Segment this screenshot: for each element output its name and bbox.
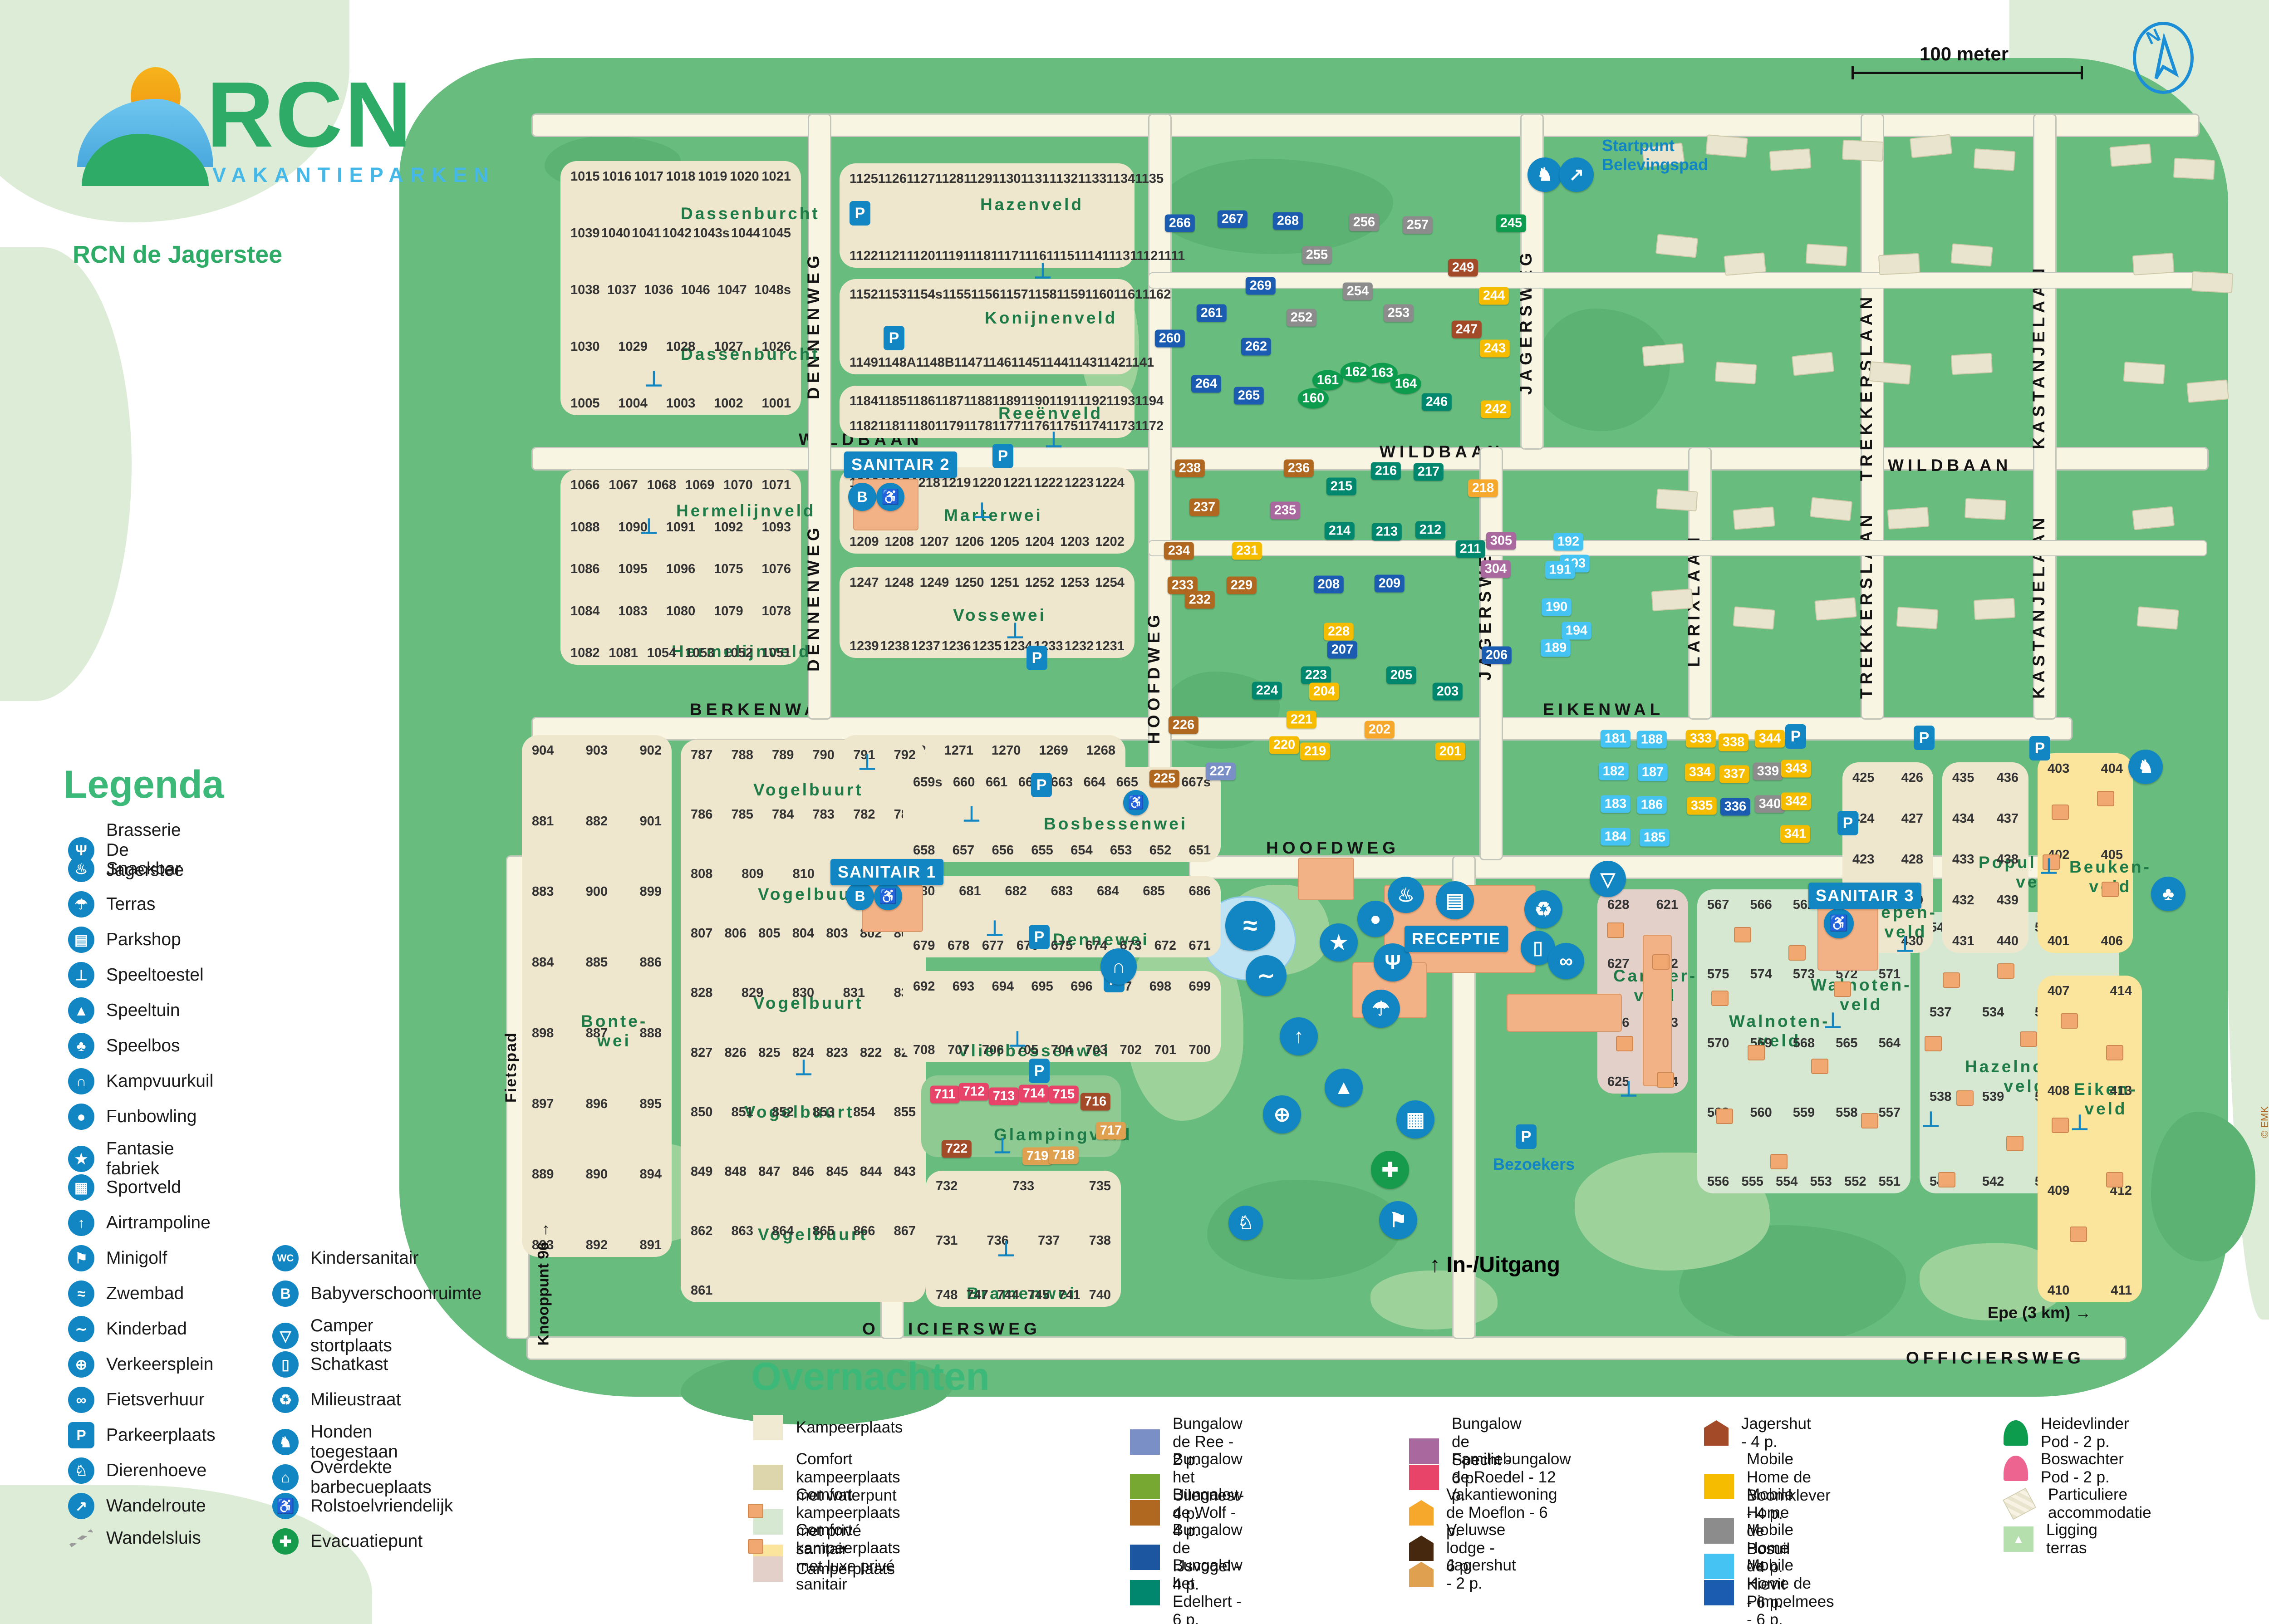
plot-number: 1132 (1049, 172, 1078, 186)
plot-number: 829 (742, 986, 763, 1001)
overnachten-swatch (1704, 1420, 1729, 1446)
bungalow-tag: 247 (1452, 321, 1482, 339)
plot-number: 537 (1930, 1005, 1951, 1020)
plot-number: 437 (1997, 811, 2019, 826)
particuliere-accommodatie (1642, 343, 1684, 367)
bungalow-tag: 711 (930, 1086, 960, 1104)
plot-number: 1220 (972, 476, 1002, 491)
plot-number: 440 (1997, 934, 2019, 949)
plot-numbers: 680681682683684685686 (913, 884, 1211, 899)
speeltoestel-icon: ⊥ (637, 515, 661, 538)
rolstoel-icon: ♿ (1123, 790, 1149, 815)
plot-number: 748 (936, 1288, 958, 1303)
evacuatiepunt-icon: ✚ (272, 1528, 299, 1555)
plot-number: 783 (813, 807, 835, 822)
parking-icon: P (1031, 773, 1052, 797)
parking-icon: P (1026, 646, 1047, 670)
sportveld-icon: ▦ (1396, 1100, 1434, 1138)
plot-number: 733 (1012, 1179, 1034, 1194)
plot-number: 1111 (1158, 249, 1185, 264)
plot-number: 1252 (1025, 575, 1055, 590)
plot-number: 1193 (1106, 394, 1135, 409)
plot-number: 1120 (907, 249, 935, 264)
plot-number: 741 (1058, 1288, 1080, 1303)
legend-item: ♘Dierenhoeve (68, 1457, 206, 1484)
plot-number: 1096 (666, 562, 696, 577)
plot-number: 740 (1089, 1288, 1111, 1303)
bungalow-tag: 333 (1686, 730, 1716, 748)
legend-item: ▦Sportveld (68, 1174, 181, 1201)
plot-number: 1048s (754, 283, 791, 298)
rolstoel-icon: ♿ (1824, 908, 1854, 938)
plot-number: 658 (913, 843, 935, 858)
honden-icon: ♞ (2128, 750, 2163, 784)
bungalow-tag: 232 (1185, 591, 1215, 609)
scale-bar (1852, 72, 2083, 74)
plot-number: 1037 (607, 283, 637, 298)
particuliere-accommodatie (1810, 497, 1852, 521)
plot-number: 787 (691, 748, 712, 763)
plot-number: 887 (586, 1026, 608, 1041)
legend-item-label: Speeltuin (106, 1001, 180, 1021)
bungalow-tag: 335 (1687, 797, 1717, 815)
plot-number: 1038 (570, 283, 600, 298)
bungalow-tag: 228 (1324, 623, 1354, 641)
plot-number: 1152 (850, 287, 878, 302)
bungalow-tag: 717 (1096, 1122, 1126, 1140)
bungalow-tag: 185 (1640, 829, 1670, 847)
road-service (1148, 540, 2207, 556)
plot-number: 865 (813, 1224, 835, 1239)
plot-numbers: 106610671068106910701071 (570, 478, 791, 493)
speelbos-icon: ♣ (68, 1033, 94, 1059)
particuliere-accommodatie (1733, 606, 1775, 630)
plot-number: 1174 (1078, 419, 1106, 434)
parking-icon: P (1785, 724, 1806, 749)
parkshop-icon: ▤ (1436, 881, 1474, 919)
speeltoestel-icon: ⊥ (2068, 1111, 2092, 1134)
bungalow-tag: 160 (1298, 388, 1329, 409)
plot-number: 1194 (1135, 394, 1164, 409)
plot-number: 1066 (570, 478, 600, 493)
plot-number: 809 (742, 867, 763, 882)
plot-number: 1134 (1106, 172, 1135, 186)
bungalow-tag: 305 (1486, 532, 1516, 550)
legend-item: ☂Terras (68, 891, 155, 917)
plot-number: 1122 (850, 249, 878, 264)
plot-number: 628 (1607, 898, 1629, 913)
plot-number: 844 (860, 1164, 882, 1179)
bungalow-tag: 246 (1422, 393, 1452, 411)
plot-number: 1125 (850, 172, 878, 186)
speeltuin-icon: ▲ (68, 997, 94, 1024)
plot-number: 1045 (761, 226, 791, 241)
plot-numbers: 115211531154s115511561157115811591160116… (850, 287, 1125, 302)
plot-numbers: 884885886 (532, 955, 662, 970)
bungalow-tag: 226 (1169, 716, 1198, 734)
plot-numbers: 556555554553552551 (1707, 1174, 1901, 1189)
prive-sanitair-cabin (2102, 882, 2119, 897)
plot-number: 409 (2048, 1183, 2069, 1198)
bungalow-tag: 219 (1300, 743, 1330, 760)
epe-label: Epe (3 km) → (1988, 1303, 2091, 1322)
particuliere-accommodatie (2136, 606, 2179, 630)
speeltoestel-icon: ⊥ (1031, 259, 1055, 283)
plot-number: 1147 (954, 355, 983, 370)
legend-item-label: Milieustraat (310, 1390, 401, 1410)
dierenhoeve-icon: ♘ (1228, 1206, 1263, 1240)
plot-number: 1209 (850, 535, 879, 550)
overnachten-swatch (753, 1556, 783, 1582)
bungalow-tag: 260 (1155, 330, 1185, 348)
plot-numbers: 679678677676675674673672671 (913, 938, 1211, 953)
plot-number: 1005 (570, 396, 600, 411)
minigolf-icon: ⚑ (68, 1245, 94, 1271)
plot-number: 850 (691, 1105, 712, 1120)
knooppunt-label: Knooppunt 96 → (535, 1222, 552, 1346)
prive-sanitair-cabin (1616, 1036, 1633, 1051)
plot-numbers: 570569568565564 (1707, 1036, 1901, 1051)
plot-number: 1148A (878, 355, 916, 370)
legend-item: ∞Fietsverhuur (68, 1387, 205, 1413)
park-name: RCN de Jagerstee (73, 240, 282, 269)
plot-number: 675 (1051, 938, 1073, 953)
plot-number: 1141 (1125, 355, 1154, 370)
legend-item-label: Zwembad (106, 1284, 184, 1304)
terras-icon: ☂ (1362, 990, 1400, 1028)
plot-number: 704 (1051, 1043, 1073, 1058)
plot-number: 898 (532, 1026, 554, 1041)
plot-number: 1190 (1021, 394, 1050, 409)
plot-numbers: 10391040104110421043s10441045 (570, 226, 791, 241)
plot-number: 738 (1089, 1233, 1111, 1248)
plot-number: 786 (691, 807, 712, 822)
plot-number: 411 (2111, 1283, 2132, 1298)
speeltuin-icon: ▲ (1325, 1069, 1363, 1107)
plot-number: 433 (1952, 852, 1974, 867)
plot-number: 888 (640, 1026, 662, 1041)
plot-number: 672 (1154, 938, 1176, 953)
plot-numbers: 1182118111801179117811771176117511741173… (850, 419, 1125, 434)
speeltoestel-icon: ⊥ (994, 1237, 1018, 1261)
barbecue-icon: ⌂ (272, 1464, 299, 1491)
plot-number: 621 (1656, 898, 1678, 913)
bungalow-tag: 340 (1755, 795, 1785, 813)
speeltoestel-icon: ⊥ (1042, 428, 1066, 451)
evacuatiepunt-icon: ✚ (1371, 1151, 1409, 1189)
plot-number: 1041 (632, 226, 661, 241)
plot-number: 1162 (1142, 287, 1171, 302)
plot-numbers: 10301029102810271026 (570, 339, 791, 354)
plot-number: 554 (1776, 1174, 1798, 1189)
bungalow-tag: 253 (1384, 304, 1414, 322)
bungalow-tag: 224 (1252, 682, 1282, 700)
plot-numbers: 692693694695696697698699 (913, 979, 1211, 994)
plot-number: 1129 (964, 172, 992, 186)
plot-number: 439 (1997, 893, 2019, 908)
plot-numbers: 11491148A1148B11471146114511441143114211… (850, 355, 1125, 370)
overnachten-item-label: Kampeerplaats (796, 1418, 903, 1437)
bungalow-tag: 342 (1781, 793, 1811, 810)
parkshop-icon: ▤ (68, 927, 94, 953)
wandelroute-icon: ↗ (68, 1493, 94, 1519)
plot-number: 558 (1836, 1105, 1857, 1120)
plot-number: 1185 (878, 394, 907, 409)
plot-number: 785 (732, 807, 753, 822)
bungalow-tag: 336 (1720, 798, 1750, 816)
plot-numbers: 1184118511861187118811891190119111921193… (850, 394, 1125, 409)
plot-number: 1044 (731, 226, 761, 241)
plot-number: 664 (1084, 775, 1105, 790)
bungalow-tag: 227 (1206, 763, 1236, 780)
plot-number: 1112 (1130, 249, 1158, 264)
plot-number: 555 (1742, 1174, 1763, 1189)
plot-numbers: 628621 (1607, 898, 1678, 913)
road-service (1148, 272, 2207, 289)
prive-sanitair-cabin (2106, 1045, 2123, 1060)
plot-number: 434 (1952, 811, 1974, 826)
plot-number: 682 (1005, 884, 1027, 899)
legend-item-label: Fietsverhuur (106, 1390, 205, 1410)
plot-numbers: 786785784783782781 (691, 807, 916, 822)
particuliere-accommodatie (1887, 507, 1930, 530)
plot-number: 1119 (935, 249, 963, 264)
plot-number: 1040 (601, 226, 631, 241)
kinderbad-icon: ∼ (68, 1316, 94, 1342)
plot-number: 1083 (618, 604, 648, 619)
plot-numbers: 425426 (1852, 770, 1923, 785)
bungalow-tag: 218 (1468, 480, 1498, 497)
speeltoestel-icon: ⊥ (983, 917, 1007, 940)
area-label: Vogelbuurt (753, 780, 864, 800)
street-label-TREKKERSLAAN: TREKKERSLAAN (1857, 511, 1876, 699)
plot-number: 851 (732, 1105, 753, 1120)
plot-number: 805 (758, 926, 780, 941)
plot-number: 1157 (1000, 287, 1028, 302)
plot-number: 1188 (964, 394, 992, 409)
particuliere-accommodatie (1724, 252, 1766, 276)
zwembad-icon: ≈ (68, 1281, 94, 1307)
plot-number: 1143 (1068, 355, 1097, 370)
plot-numbers: 10881090109110921093 (570, 520, 791, 535)
bungalow-tag: 245 (1496, 215, 1526, 232)
plot-number: 892 (586, 1238, 608, 1253)
prive-sanitair-cabin (2006, 1136, 2023, 1151)
bungalow-tag: 268 (1273, 212, 1303, 230)
legend-item: ▯Schatkast (272, 1351, 388, 1378)
legend-item: ∼Kinderbad (68, 1316, 187, 1342)
plot-number: 542 (1982, 1174, 2004, 1189)
bungalow-tag: 339 (1753, 763, 1783, 780)
plot-number: 849 (691, 1164, 712, 1179)
plot-number: 553 (1810, 1174, 1832, 1189)
bungalow-tag: 235 (1270, 502, 1300, 520)
plot-number: 1079 (714, 604, 743, 619)
plot-number: 684 (1097, 884, 1119, 899)
plot-number: 732 (936, 1179, 958, 1194)
particuliere-accommodatie (1842, 140, 1884, 162)
plot-number: 700 (1189, 1043, 1211, 1058)
prive-sanitair-cabin (2052, 1118, 2069, 1133)
rolstoel-icon: ♿ (874, 882, 902, 910)
plot-number: 574 (1750, 967, 1772, 982)
plot-number: 790 (813, 748, 835, 763)
honden-icon: ♞ (1527, 157, 1562, 192)
plot-number: 828 (691, 986, 712, 1001)
speeltoestel-icon: ⊥ (855, 751, 879, 774)
plot-number: 1117 (991, 249, 1018, 264)
plot-number: 426 (1901, 770, 1923, 785)
speeltoestel-icon: ⊥ (1006, 1027, 1029, 1051)
plot-number: 1145 (1011, 355, 1040, 370)
plot-number: 1039 (570, 226, 600, 241)
map-layer: WILDBAANWILDBAANWILDBAANBERKENWALEIKENWA… (0, 0, 2269, 1624)
plot-number: 1070 (723, 478, 753, 493)
plot-numbers: 103810371036104610471048s (570, 283, 791, 298)
bungalow-tag: 213 (1372, 523, 1402, 541)
plot-number: 671 (1189, 938, 1211, 953)
plot-number: 848 (725, 1164, 747, 1179)
babyverschoonruimte-icon: B (848, 483, 876, 511)
plot-number: 414 (2110, 984, 2132, 999)
overnachten-item-label: Particuliere accommodatie (2048, 1486, 2151, 1522)
milieustraat-icon: ♻ (1524, 890, 1562, 928)
park-clearing (1370, 1271, 1498, 1330)
legend-item: ⊕Verkeersplein (68, 1351, 213, 1378)
plot-number: 1018 (666, 169, 696, 184)
rolstoel-icon: ♿ (876, 483, 904, 511)
plot-number: 890 (586, 1167, 608, 1182)
plot-number: 1153 (878, 287, 907, 302)
plot-number: 735 (1089, 1179, 1111, 1194)
plot-number: 1051 (761, 646, 791, 661)
plot-number: 895 (640, 1097, 662, 1112)
bungalow-tag: 256 (1349, 214, 1379, 231)
speeltoestel-icon: ⊥ (970, 499, 994, 522)
area-eiken--veld (2038, 976, 2142, 1302)
plot-number: 653 (1110, 843, 1132, 858)
funbowling-icon: ● (68, 1104, 94, 1130)
plot-number: 566 (1750, 898, 1772, 913)
plot-number: 806 (725, 926, 747, 941)
particuliere-accommodatie (2132, 506, 2175, 530)
bezoekers-label: Bezoekers (1493, 1155, 1575, 1174)
bungalow-tag: 203 (1433, 683, 1463, 701)
street-label-OFFICIERSWEG: OFFICIERSWEG (1906, 1349, 2085, 1368)
bungalow-tag: 229 (1227, 577, 1257, 594)
bungalow-tag: 220 (1269, 736, 1299, 754)
overnachten-swatch (2003, 1488, 2036, 1520)
plot-number: 902 (640, 743, 662, 758)
bungalow-tag: 188 (1637, 731, 1667, 749)
plot-number: 1015 (570, 169, 600, 184)
plot-number: 1247 (850, 575, 879, 590)
plot-number: 1154s (907, 287, 943, 302)
legend-item: BBabyverschoonruimte (272, 1281, 481, 1307)
bungalow-tag: 266 (1165, 215, 1195, 232)
overnachten-swatch (753, 1415, 783, 1440)
plot-number: 1159 (1057, 287, 1085, 302)
plot-number: 674 (1085, 938, 1107, 953)
funbowling-icon: ● (1357, 901, 1394, 937)
legend-item-label: Verkeersplein (106, 1354, 213, 1374)
plot-number: 571 (1879, 967, 1901, 982)
bungalow-tag: 202 (1365, 721, 1395, 739)
legend-item: ♨Snackbar (68, 856, 181, 882)
bungalow-tag: 265 (1234, 387, 1264, 405)
plot-number: 663 (1051, 775, 1073, 790)
plot-number: 656 (992, 843, 1014, 858)
plot-number: 1020 (730, 169, 759, 184)
plot-number: 660 (953, 775, 975, 790)
plot-number: 560 (1750, 1105, 1772, 1120)
plot-number: 1068 (647, 478, 677, 493)
plot-number: 696 (1071, 979, 1092, 994)
prive-sanitair-cabin (1716, 1109, 1733, 1124)
prive-sanitair-cabin (2106, 1172, 2123, 1187)
verkeersplein-icon: ⊕ (68, 1351, 94, 1378)
speeltoestel-icon: ⊥ (991, 1134, 1014, 1158)
legend-item: ⚑Minigolf (68, 1245, 167, 1271)
plot-numbers: 904903902 (532, 743, 662, 758)
park-texture (2151, 1112, 2255, 1261)
babyverschoonruimte-icon: B (272, 1281, 299, 1307)
legend-item-label: Fantasie fabriek (106, 1139, 174, 1179)
plot-number: 1126 (878, 172, 907, 186)
plot-number: 1052 (723, 646, 753, 661)
overnachten-item: Bungalow het Edelhert - 6 p. (1130, 1556, 1243, 1624)
particuliere-accommodatie (2173, 158, 2215, 180)
prive-sanitair-cabin-icon (748, 1539, 763, 1554)
legend-item-label: Rolstoelvriendelijk (310, 1496, 453, 1516)
legend-item-label: Kampvuurkuil (106, 1071, 213, 1091)
plot-number: 1270 (992, 743, 1021, 758)
plot-number: 1131 (1021, 172, 1050, 186)
plot-number: 745 (1028, 1288, 1050, 1303)
speeltoestel-icon: ⊥ (1821, 1009, 1845, 1032)
plot-numbers: 1125112611271128112911301131113211331134… (850, 172, 1125, 186)
plot-number: 568 (1793, 1036, 1815, 1051)
bungalow-tag: 216 (1371, 462, 1401, 480)
plot-number: 1161 (1114, 287, 1142, 302)
legend-item: ↗Wandelroute (68, 1493, 206, 1519)
verkeersplein-icon: ⊕ (1263, 1095, 1301, 1133)
plot-number: 1237 (911, 639, 940, 654)
plot-number: 551 (1879, 1174, 1901, 1189)
plot-number: 1182 (850, 419, 878, 434)
bungalow-tag: 718 (1049, 1147, 1079, 1164)
plot-number: 867 (894, 1224, 916, 1239)
plot-number: 698 (1149, 979, 1171, 994)
plot-number: 431 (1952, 934, 1974, 949)
plot-number: 853 (813, 1105, 835, 1120)
particuliere-accommodatie (1910, 134, 1952, 158)
plot-number: 1155 (943, 287, 971, 302)
bungalow-tag: 192 (1553, 533, 1583, 551)
bungalow-tag: 234 (1164, 542, 1194, 560)
legend-item-label: Sportveld (106, 1178, 181, 1197)
bungalow-tag: 206 (1482, 647, 1512, 664)
overnachten-item: Boswachter Pod - 2 p. (2004, 1450, 2124, 1487)
bungalow-tag: 187 (1638, 764, 1668, 781)
plot-number: 1016 (602, 169, 632, 184)
overnachten-item: Kampeerplaats (753, 1415, 903, 1440)
plot-number: 702 (1120, 1043, 1142, 1058)
legend-item-label: Babyverschoonruimte (310, 1284, 481, 1304)
plot-number: 852 (772, 1105, 794, 1120)
parking-icon: P (1029, 1059, 1050, 1083)
plot-number: 1091 (666, 520, 696, 535)
